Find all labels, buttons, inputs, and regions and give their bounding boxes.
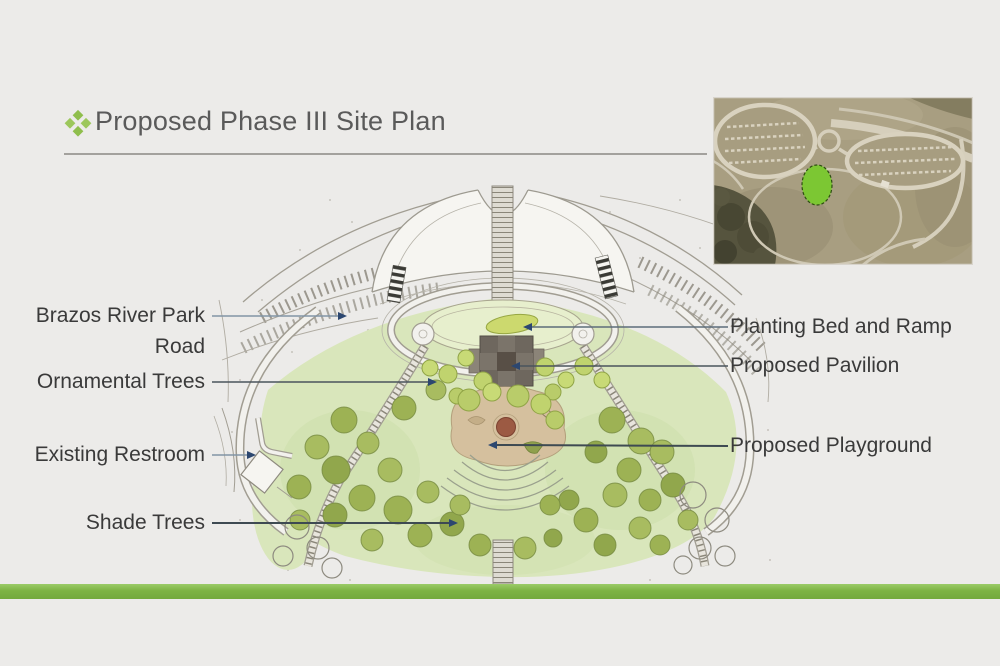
leader-arrow-icon <box>247 451 256 459</box>
title-underline <box>64 153 707 155</box>
footer-accent-bar <box>0 584 1000 599</box>
leader-proposed-pavilion <box>511 362 728 370</box>
leader-arrow-icon <box>449 519 458 527</box>
callout-shade-trees: Shade Trees <box>20 511 205 535</box>
leader-arrow-icon <box>488 441 497 449</box>
leader-arrow-icon <box>523 323 532 331</box>
leader-planting-bed-and-ramp <box>523 323 728 331</box>
page-title: Proposed Phase III Site Plan <box>95 106 446 137</box>
title-block: Proposed Phase III Site Plan <box>64 106 446 139</box>
leader-arrow-icon <box>428 378 437 386</box>
leader-arrow-icon <box>511 362 520 370</box>
callout-planting-bed-and-ramp: Planting Bed and Ramp <box>730 315 992 339</box>
leader-arrow-icon <box>338 312 347 320</box>
leader-existing-restroom <box>212 451 256 459</box>
leader-ornamental-trees <box>212 378 437 386</box>
callout-proposed-playground: Proposed Playground <box>730 434 992 458</box>
leader-shade-trees <box>212 519 458 527</box>
slide: Proposed Phase III Site Plan Brazos Rive… <box>0 0 1000 666</box>
leader-brazos-river-park-road <box>212 312 347 320</box>
callout-ornamental-trees: Ornamental Trees <box>20 370 205 394</box>
callout-existing-restroom: Existing Restroom <box>20 443 205 467</box>
callout-proposed-pavilion: Proposed Pavilion <box>730 354 992 378</box>
diamond-bullet-icon <box>64 109 92 139</box>
callout-brazos-river-park-road: Brazos River Park Road <box>20 300 205 362</box>
leader-proposed-playground <box>488 441 728 449</box>
